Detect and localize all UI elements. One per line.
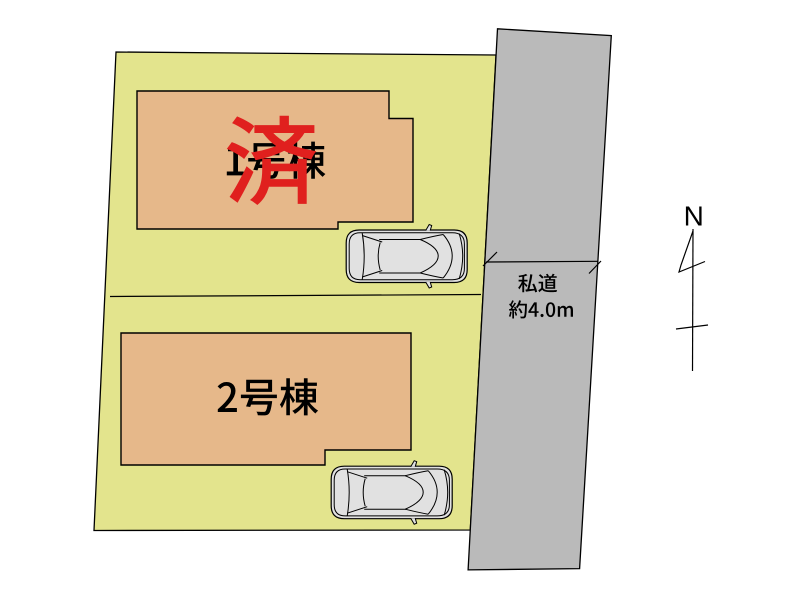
svg-text:N: N [684,201,704,232]
